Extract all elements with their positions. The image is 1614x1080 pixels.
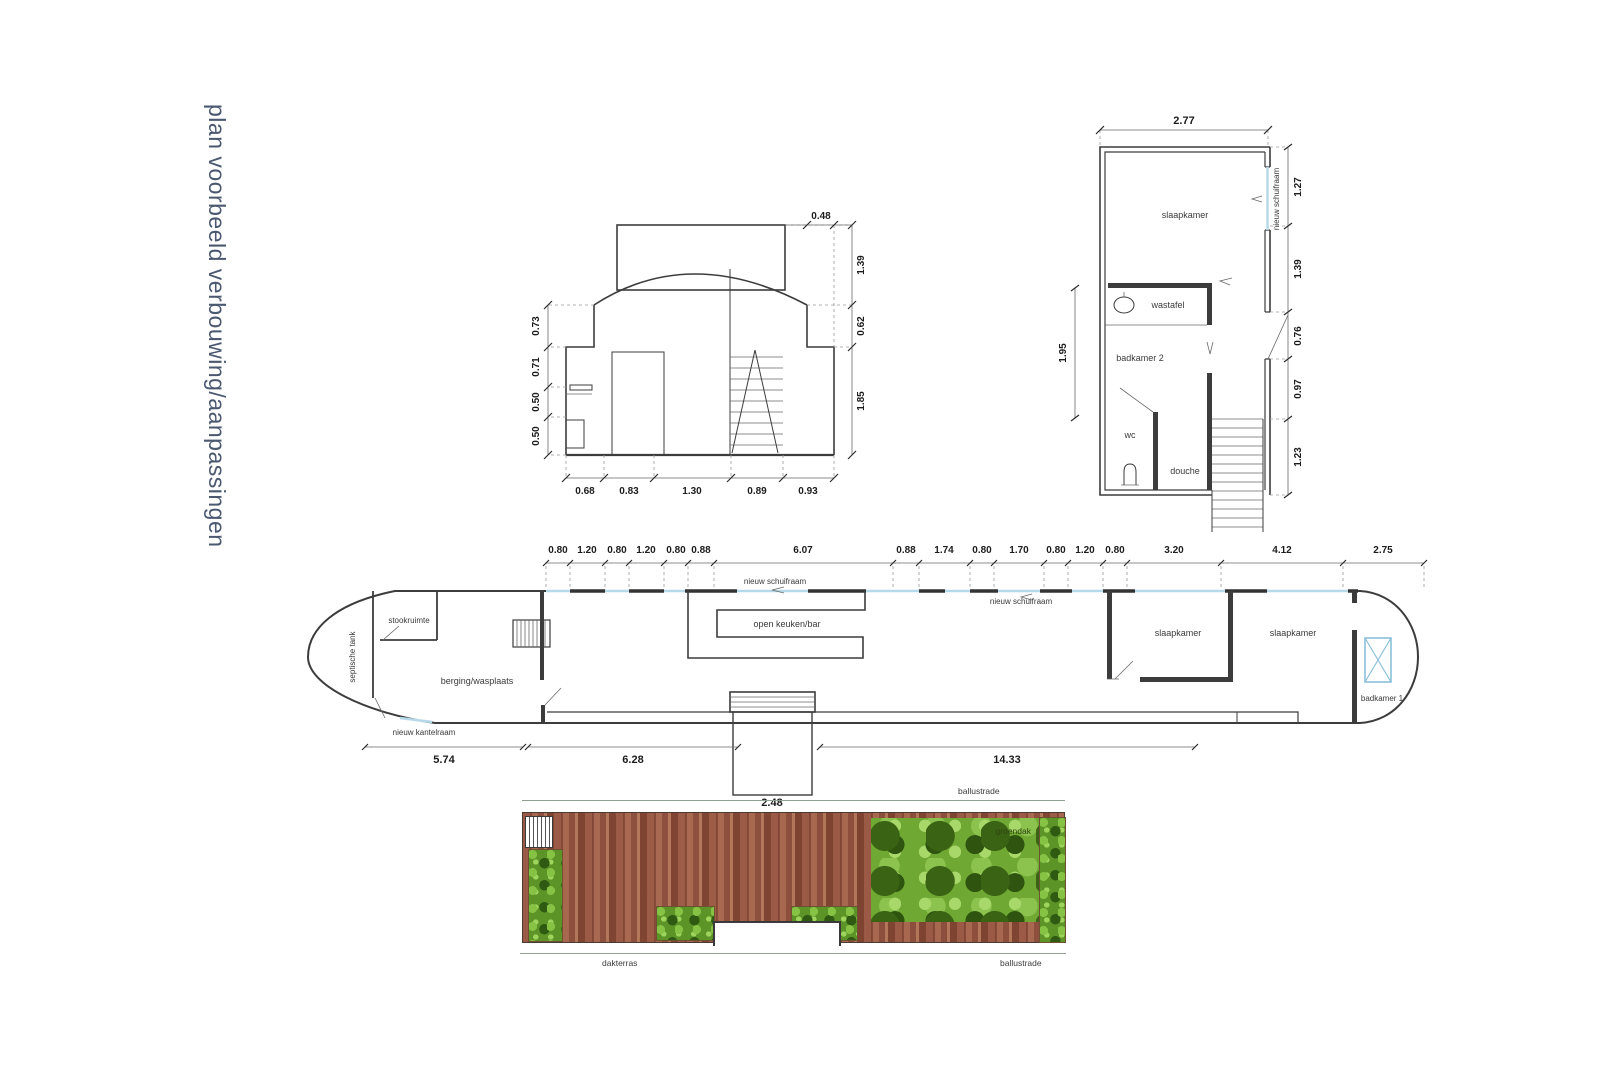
planter-middle-1 <box>656 906 715 941</box>
dakterras-label: dakterras <box>602 958 637 968</box>
dim-label: 2.77 <box>1173 115 1194 127</box>
dim-label: 1.95 <box>1058 343 1069 363</box>
dim-label: 1.30 <box>682 486 702 497</box>
dim-label: 6.28 <box>622 754 643 766</box>
stairs-rungs <box>730 357 783 445</box>
window-label: nieuw schuifraam <box>1272 168 1281 231</box>
deck-stairs-hatch <box>525 816 553 848</box>
room-label-stookruimte: stookruimte <box>388 616 430 625</box>
entrance-notch <box>713 921 841 946</box>
deck-surface: groendak <box>522 812 1065 943</box>
dim-label: 0.83 <box>619 486 639 497</box>
balustrade-label-bottom: ballustrade <box>1000 958 1042 968</box>
roof-deck-plan: ballustrade groendak dakterras ballustra… <box>520 786 1070 981</box>
dim-label: 1.39 <box>1293 259 1304 279</box>
room-label-slaapkamer: slaapkamer <box>1162 210 1209 220</box>
dim-label: 0.80 <box>548 545 568 556</box>
shower-symbol <box>1365 638 1391 682</box>
dim-label: 0.80 <box>1046 545 1066 556</box>
dim-label: 1.74 <box>934 545 954 556</box>
room-label-badkamer2: badkamer 2 <box>1116 353 1164 363</box>
room-label-douche: douche <box>1170 466 1200 476</box>
dim-label: 0.50 <box>531 392 542 412</box>
room-label-berging: berging/wasplaats <box>441 676 514 686</box>
dim-label: 1.20 <box>1075 545 1095 556</box>
upper-deck-fixtures <box>1114 292 1263 532</box>
dim-label: 3.20 <box>1164 545 1184 556</box>
dim-label: 0.80 <box>972 545 992 556</box>
main-plan-room-labels: septische tank stookruimte berging/waspl… <box>348 577 1404 737</box>
balustrade-line-top <box>522 800 1065 801</box>
window-label-schuifraam: nieuw schuifraam <box>990 597 1053 606</box>
dim-label: 0.73 <box>531 316 542 336</box>
section-view-drawing: 0.48 1.39 0.62 1.85 0.73 0.71 0.50 0.50 … <box>530 195 870 503</box>
dim-label: 1.39 <box>856 255 867 275</box>
room-label-badkamer1: badkamer 1 <box>1361 694 1404 703</box>
dim-label: 1.20 <box>577 545 597 556</box>
balustrade-label-top: ballustrade <box>958 786 1000 796</box>
dim-label: 0.89 <box>747 486 767 497</box>
dim-label: 0.97 <box>1293 379 1304 399</box>
room-label-wastafel: wastafel <box>1150 300 1184 310</box>
dim-label: 0.80 <box>666 545 686 556</box>
floorplan-sheet: plan voorbeeld verbouwing/aanpassingen <box>0 0 1614 1080</box>
section-structure <box>566 225 834 455</box>
room-label-slaapkamer-2: slaapkamer <box>1270 628 1317 638</box>
room-label-keuken: open keuken/bar <box>753 619 820 629</box>
main-deck-plan-drawing: 0.80 1.20 0.80 1.20 0.80 0.88 6.07 0.88 … <box>295 535 1435 820</box>
dim-label: 1.20 <box>636 545 656 556</box>
dim-label: 6.07 <box>793 545 813 556</box>
dim-label: 0.93 <box>798 486 818 497</box>
green-roof: groendak <box>871 818 1041 922</box>
dim-label: 14.33 <box>993 754 1021 766</box>
planter-left <box>528 849 563 942</box>
dim-label: 4.12 <box>1272 545 1292 556</box>
dim-label: 1.27 <box>1293 177 1304 197</box>
page-title: plan voorbeeld verbouwing/aanpassingen <box>203 104 230 564</box>
window-label-schuifraam: nieuw schuifraam <box>744 577 807 586</box>
dim-label: 1.85 <box>856 391 867 411</box>
upper-deck-walls <box>1100 147 1288 495</box>
upper-deck-room-labels: slaapkamer wastafel badkamer 2 wc douche <box>1116 210 1208 476</box>
groendak-label: groendak <box>996 826 1031 836</box>
dim-label: 0.88 <box>896 545 916 556</box>
window-label-kantelraam: nieuw kantelraam <box>393 728 456 737</box>
dim-label: 0.68 <box>575 486 595 497</box>
dim-label: 1.23 <box>1293 447 1304 467</box>
dim-label: 0.50 <box>531 426 542 446</box>
upper-deck-plan-drawing: 2.77 1.27 1.39 0.76 0.97 1.23 1.95 nieuw… <box>1040 110 1340 540</box>
dim-label: 5.74 <box>433 754 455 766</box>
room-label-slaapkamer-1: slaapkamer <box>1155 628 1202 638</box>
dim-label: 1.70 <box>1009 545 1029 556</box>
dim-label: 0.88 <box>691 545 711 556</box>
dim-label: 2.75 <box>1373 545 1393 556</box>
main-plan-dimensions: 0.80 1.20 0.80 1.20 0.80 0.88 6.07 0.88 … <box>362 545 1427 809</box>
dim-label: 0.48 <box>811 211 831 222</box>
dim-label: 0.76 <box>1293 326 1304 346</box>
room-label-wc: wc <box>1124 430 1136 440</box>
room-label-septische-tank: septische tank <box>348 630 357 682</box>
dim-label: 0.80 <box>1105 545 1125 556</box>
planter-right <box>1039 817 1066 943</box>
dim-label: 0.71 <box>531 357 542 377</box>
balustrade-line-bottom <box>520 953 1066 954</box>
dim-label: 0.80 <box>607 545 627 556</box>
interior-walls <box>373 591 1391 795</box>
dim-label: 0.62 <box>856 316 867 336</box>
